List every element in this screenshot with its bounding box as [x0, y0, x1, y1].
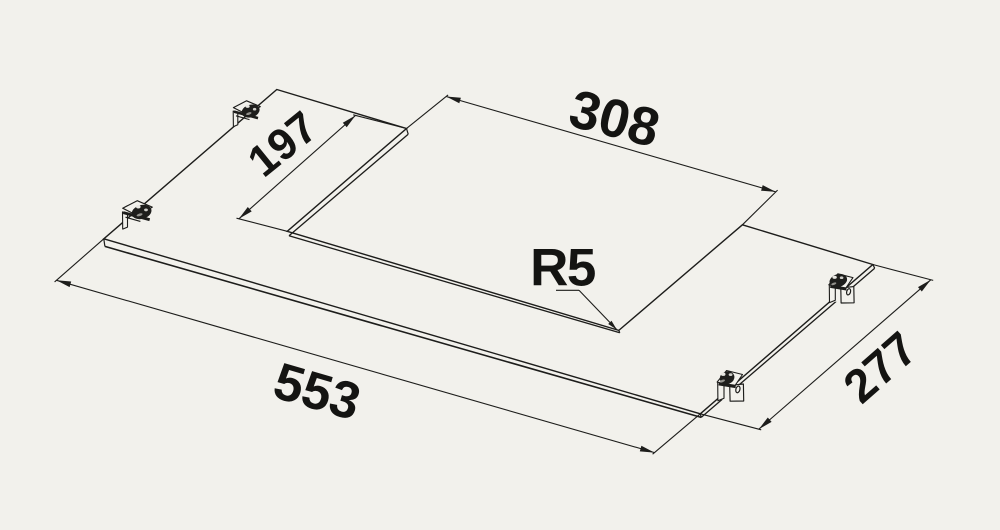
- svg-text:R5: R5: [530, 239, 595, 298]
